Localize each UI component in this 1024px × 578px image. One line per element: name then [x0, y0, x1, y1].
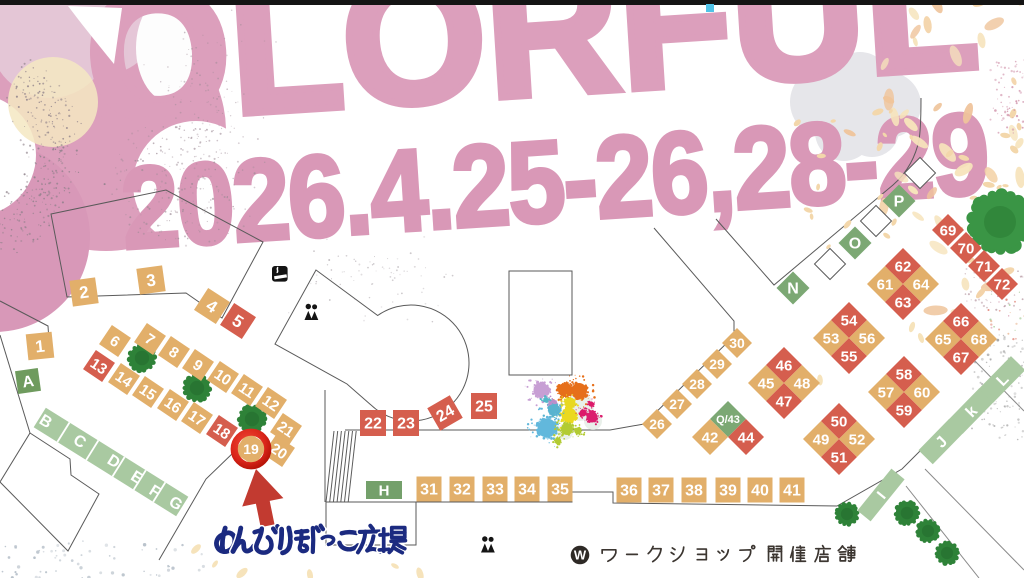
svg-text:47: 47: [776, 393, 793, 410]
svg-text:59: 59: [896, 402, 913, 419]
svg-text:22: 22: [364, 416, 382, 433]
svg-text:51: 51: [831, 449, 848, 466]
svg-text:57: 57: [878, 384, 895, 401]
svg-text:32: 32: [453, 482, 471, 499]
svg-text:46: 46: [776, 357, 793, 374]
svg-text:H: H: [379, 483, 390, 500]
svg-text:70: 70: [958, 240, 975, 257]
svg-text:50: 50: [831, 413, 848, 430]
svg-text:37: 37: [652, 483, 670, 500]
svg-text:28: 28: [689, 376, 705, 392]
svg-text:40: 40: [751, 483, 769, 500]
svg-text:71: 71: [976, 258, 993, 275]
svg-text:36: 36: [620, 483, 638, 500]
svg-text:65: 65: [935, 331, 952, 348]
svg-text:53: 53: [823, 330, 840, 347]
svg-text:67: 67: [953, 349, 970, 366]
svg-text:39: 39: [719, 483, 737, 500]
svg-text:W: W: [574, 548, 587, 563]
svg-text:38: 38: [685, 483, 703, 500]
svg-text:62: 62: [895, 258, 912, 275]
svg-text:N: N: [787, 281, 799, 298]
svg-text:26: 26: [649, 416, 665, 432]
svg-text:72: 72: [994, 276, 1011, 293]
svg-text:P: P: [894, 194, 905, 211]
svg-text:48: 48: [794, 375, 811, 392]
svg-text:27: 27: [669, 396, 685, 412]
svg-text:19: 19: [243, 441, 259, 457]
svg-text:44: 44: [738, 429, 755, 446]
svg-text:56: 56: [859, 330, 876, 347]
svg-text:60: 60: [914, 384, 931, 401]
svg-text:29: 29: [709, 356, 725, 372]
svg-text:54: 54: [841, 312, 858, 329]
svg-text:45: 45: [758, 375, 775, 392]
svg-text:55: 55: [841, 348, 858, 365]
svg-text:68: 68: [971, 331, 988, 348]
svg-text:52: 52: [849, 431, 866, 448]
svg-text:34: 34: [518, 482, 536, 499]
svg-text:1: 1: [34, 337, 45, 357]
svg-text:23: 23: [397, 416, 415, 433]
svg-text:63: 63: [895, 294, 912, 311]
svg-text:35: 35: [551, 482, 569, 499]
svg-text:58: 58: [896, 366, 913, 383]
svg-text:Q/43: Q/43: [716, 414, 740, 426]
svg-text:66: 66: [953, 313, 970, 330]
svg-text:69: 69: [940, 222, 957, 239]
svg-text:25: 25: [475, 399, 493, 416]
svg-text:O: O: [849, 236, 861, 253]
svg-text:64: 64: [913, 276, 930, 293]
svg-text:30: 30: [729, 335, 745, 351]
svg-text:42: 42: [702, 429, 719, 446]
svg-text:31: 31: [420, 482, 438, 499]
svg-text:33: 33: [486, 482, 504, 499]
svg-text:49: 49: [813, 431, 830, 448]
svg-text:41: 41: [783, 483, 801, 500]
svg-text:61: 61: [877, 276, 894, 293]
